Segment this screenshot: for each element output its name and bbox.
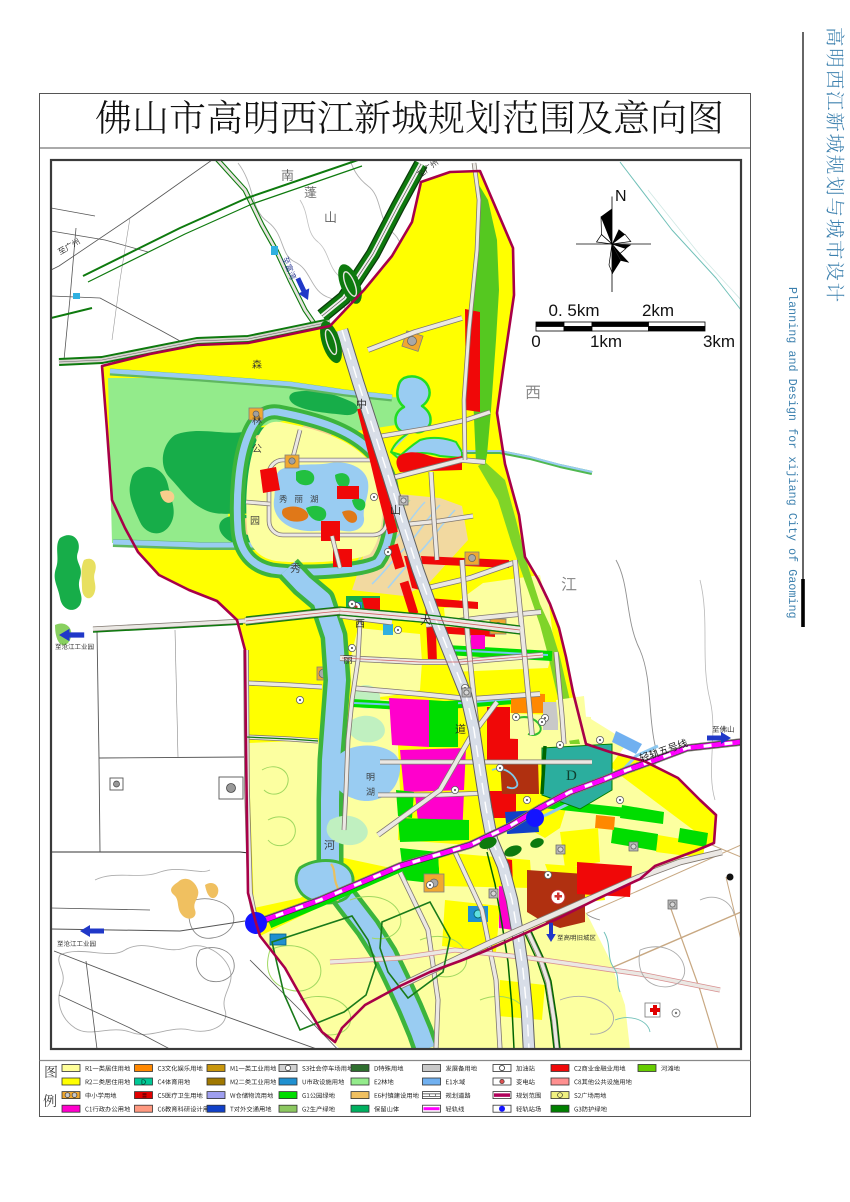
svg-text:D: D bbox=[566, 768, 577, 784]
svg-text:Planning and Design for xijian: Planning and Design for xijiang City of … bbox=[785, 287, 798, 619]
svg-text:1km: 1km bbox=[590, 332, 622, 351]
svg-text:2km: 2km bbox=[642, 301, 674, 320]
svg-text:3km: 3km bbox=[703, 332, 735, 351]
svg-text:N: N bbox=[615, 188, 627, 205]
svg-text:0: 0 bbox=[531, 332, 540, 351]
svg-text:0. 5km: 0. 5km bbox=[548, 301, 599, 320]
svg-text:D: D bbox=[141, 1079, 146, 1086]
